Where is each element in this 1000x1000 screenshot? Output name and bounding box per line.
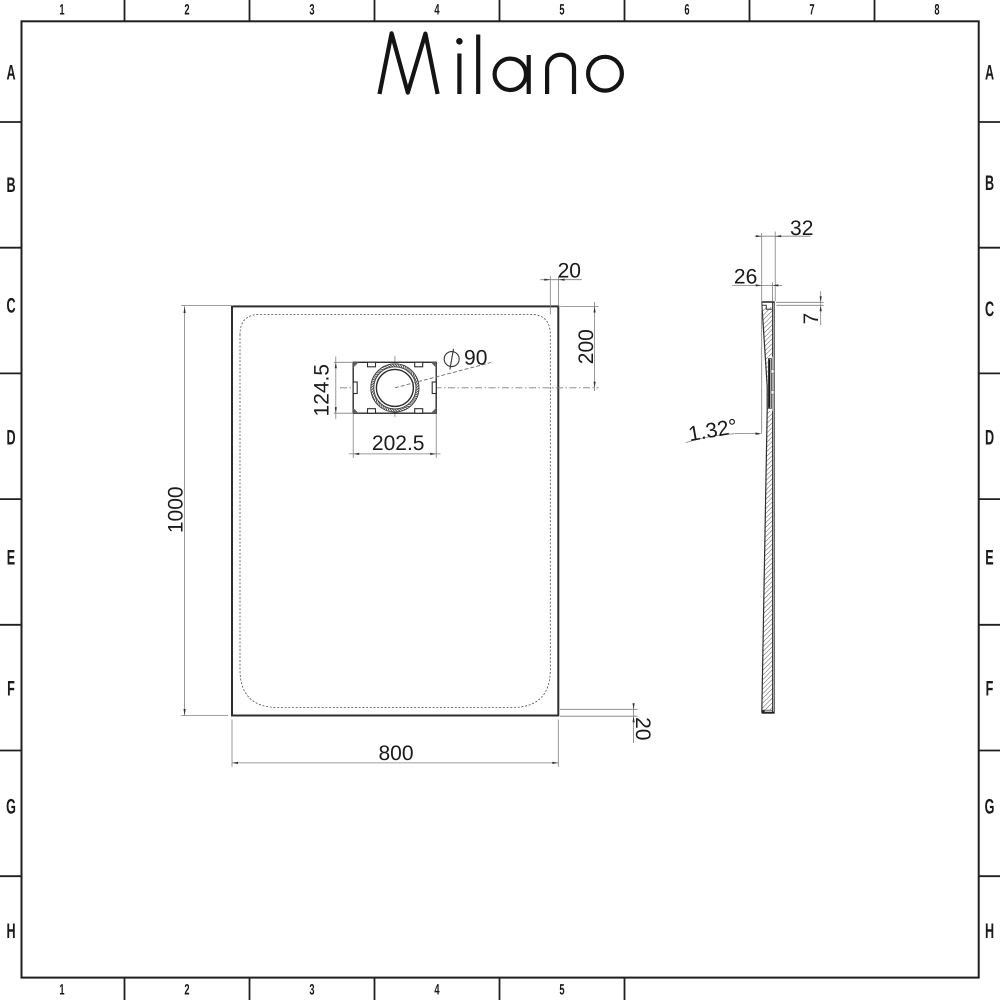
svg-text:D: D xyxy=(6,426,15,449)
svg-text:8: 8 xyxy=(934,2,939,19)
svg-text:1: 1 xyxy=(59,2,64,19)
svg-text:5: 5 xyxy=(559,982,564,999)
svg-text:H: H xyxy=(6,920,15,943)
svg-text:6: 6 xyxy=(684,2,689,19)
svg-text:2: 2 xyxy=(184,982,189,999)
svg-text:7: 7 xyxy=(809,2,814,19)
svg-text:1000: 1000 xyxy=(165,486,188,533)
svg-text:90: 90 xyxy=(464,347,487,370)
svg-text:32: 32 xyxy=(790,217,813,240)
svg-text:124.5: 124.5 xyxy=(311,364,334,417)
svg-text:E: E xyxy=(985,547,993,570)
svg-text:A: A xyxy=(6,62,15,85)
svg-text:200: 200 xyxy=(575,329,598,364)
svg-text:E: E xyxy=(7,547,15,570)
svg-text:A: A xyxy=(985,62,994,85)
svg-text:C: C xyxy=(985,298,994,321)
svg-text:5: 5 xyxy=(559,2,564,19)
svg-text:202.5: 202.5 xyxy=(372,432,425,455)
svg-text:20: 20 xyxy=(631,717,654,740)
svg-text:C: C xyxy=(6,295,15,318)
svg-text:F: F xyxy=(7,677,15,700)
svg-text:G: G xyxy=(6,796,16,819)
svg-text:G: G xyxy=(985,796,995,819)
svg-text:3: 3 xyxy=(309,2,314,19)
svg-text:F: F xyxy=(986,677,994,700)
svg-text:26: 26 xyxy=(734,266,757,289)
svg-text:1: 1 xyxy=(59,982,64,999)
svg-text:D: D xyxy=(985,426,994,449)
svg-text:H: H xyxy=(985,920,994,943)
svg-text:B: B xyxy=(6,174,15,197)
svg-text:7: 7 xyxy=(800,313,823,325)
svg-text:4: 4 xyxy=(434,982,440,999)
svg-text:800: 800 xyxy=(378,742,413,765)
svg-text:3: 3 xyxy=(309,982,314,999)
svg-text:20: 20 xyxy=(558,260,581,283)
svg-text:4: 4 xyxy=(434,2,440,19)
svg-text:B: B xyxy=(985,172,994,195)
svg-text:2: 2 xyxy=(184,2,189,19)
